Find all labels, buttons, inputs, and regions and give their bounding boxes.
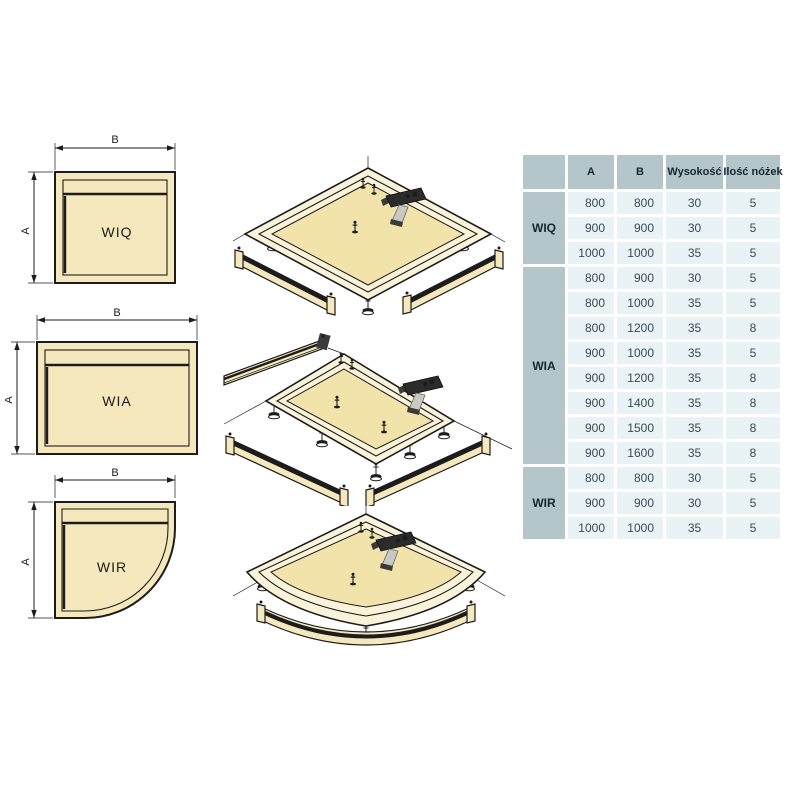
- table-cell: 30: [666, 492, 723, 514]
- spec-table: ABWysokośćIlość nóżekWIQ8008003059009003…: [523, 155, 780, 539]
- table-cell: 8: [726, 442, 780, 464]
- table-cell: 900: [617, 267, 663, 289]
- wia-plan-diagram: B A WIA: [5, 308, 210, 468]
- table-cell: 8: [726, 417, 780, 439]
- wia-plan-label: WIA: [102, 393, 131, 409]
- table-cell: 30: [666, 467, 723, 489]
- table-cell: 5: [726, 492, 780, 514]
- table-cell: 35: [666, 417, 723, 439]
- table-cell: 30: [666, 217, 723, 239]
- table-cell: 1000: [617, 342, 663, 364]
- table-cell: 5: [726, 217, 780, 239]
- table-cell: 1000: [568, 242, 614, 264]
- wiq-3d-frame: [245, 168, 491, 315]
- table-group-label: WIR: [523, 467, 565, 539]
- wir-dim-a-label: A: [20, 558, 32, 566]
- wia-3d-frame: [266, 353, 454, 481]
- table-cell: 800: [568, 467, 614, 489]
- table-cell: 800: [568, 267, 614, 289]
- table-cell: 900: [568, 392, 614, 414]
- table-cell: 1200: [617, 367, 663, 389]
- table-cell: 1200: [617, 317, 663, 339]
- table-cell: 1500: [617, 417, 663, 439]
- table-header-cell: A: [568, 155, 614, 189]
- table-cell: 5: [726, 517, 780, 539]
- wir-plan-shape: WIR: [55, 502, 175, 618]
- table-cell: 35: [666, 292, 723, 314]
- wir-plan-diagram: B A WIR: [20, 468, 192, 660]
- table-cell: 1400: [617, 392, 663, 414]
- table-cell: 5: [726, 292, 780, 314]
- wiq-dimension-b: B: [55, 134, 175, 170]
- table-header-cell: Ilość nóżek: [726, 155, 780, 189]
- table-cell: 800: [568, 292, 614, 314]
- wiq-plan-label: WIQ: [102, 224, 133, 240]
- wia-dim-b-label: B: [113, 308, 120, 319]
- table-cell: 900: [568, 367, 614, 389]
- table-cell: 900: [617, 492, 663, 514]
- table-cell: 900: [568, 217, 614, 239]
- table-cell: 800: [568, 192, 614, 214]
- table-cell: 8: [726, 317, 780, 339]
- table-cell: 35: [666, 517, 723, 539]
- wiq-dim-b-label: B: [111, 134, 118, 146]
- table-cell: 5: [726, 467, 780, 489]
- table-cell: 35: [666, 317, 723, 339]
- table-cell: 5: [726, 267, 780, 289]
- wir-dimension-a: A: [20, 502, 53, 618]
- table-cell: 900: [568, 342, 614, 364]
- wiq-dimension-a: A: [20, 172, 53, 283]
- table-header-cell: B: [617, 155, 663, 189]
- table-cell: 800: [617, 192, 663, 214]
- table-cell: 800: [617, 467, 663, 489]
- table-cell: 35: [666, 342, 723, 364]
- table-cell: 30: [666, 192, 723, 214]
- wia-3d-apron-left: [226, 433, 348, 507]
- table-cell: 5: [726, 192, 780, 214]
- wia-dim-a-label: A: [5, 396, 15, 404]
- wia-dimension-b: B: [37, 308, 197, 340]
- table-cell: 35: [666, 442, 723, 464]
- wiq-dim-a-label: A: [20, 227, 32, 235]
- table-cell: 1600: [617, 442, 663, 464]
- table-cell: 1000: [568, 517, 614, 539]
- table-group-label: WIQ: [523, 192, 565, 264]
- table-cell: 8: [726, 367, 780, 389]
- table-cell: 8: [726, 392, 780, 414]
- table-cell: 800: [568, 317, 614, 339]
- table-cell: 900: [568, 492, 614, 514]
- table-cell: 30: [666, 267, 723, 289]
- table-group-label: WIA: [523, 267, 565, 464]
- table-cell: 900: [617, 217, 663, 239]
- wir-3d-diagram: [233, 504, 505, 666]
- table-cell: 35: [666, 392, 723, 414]
- wir-dim-b-label: B: [111, 468, 118, 479]
- wia-plan-shape: WIA: [37, 342, 197, 454]
- table-cell: 1000: [617, 292, 663, 314]
- table-cell: 900: [568, 442, 614, 464]
- wiq-plan-diagram: B A WIQ: [20, 130, 192, 298]
- wiq-plan-shape: WIQ: [55, 172, 175, 283]
- wir-plan-label: WIR: [97, 559, 127, 575]
- table-cell: 1000: [617, 517, 663, 539]
- page: B A WIQ B: [0, 0, 800, 800]
- wia-3d-diagram: [222, 328, 514, 506]
- wia-dimension-a: A: [5, 342, 35, 454]
- table-cell: 5: [726, 242, 780, 264]
- wir-dimension-b: B: [55, 468, 175, 498]
- table-cell: 35: [666, 367, 723, 389]
- table-cell: 35: [666, 242, 723, 264]
- table-corner-cell: [523, 155, 565, 189]
- table-cell: 5: [726, 342, 780, 364]
- table-cell: 900: [568, 417, 614, 439]
- wiq-3d-diagram: [233, 156, 505, 326]
- table-header-cell: Wysokość: [666, 155, 723, 189]
- table-cell: 1000: [617, 242, 663, 264]
